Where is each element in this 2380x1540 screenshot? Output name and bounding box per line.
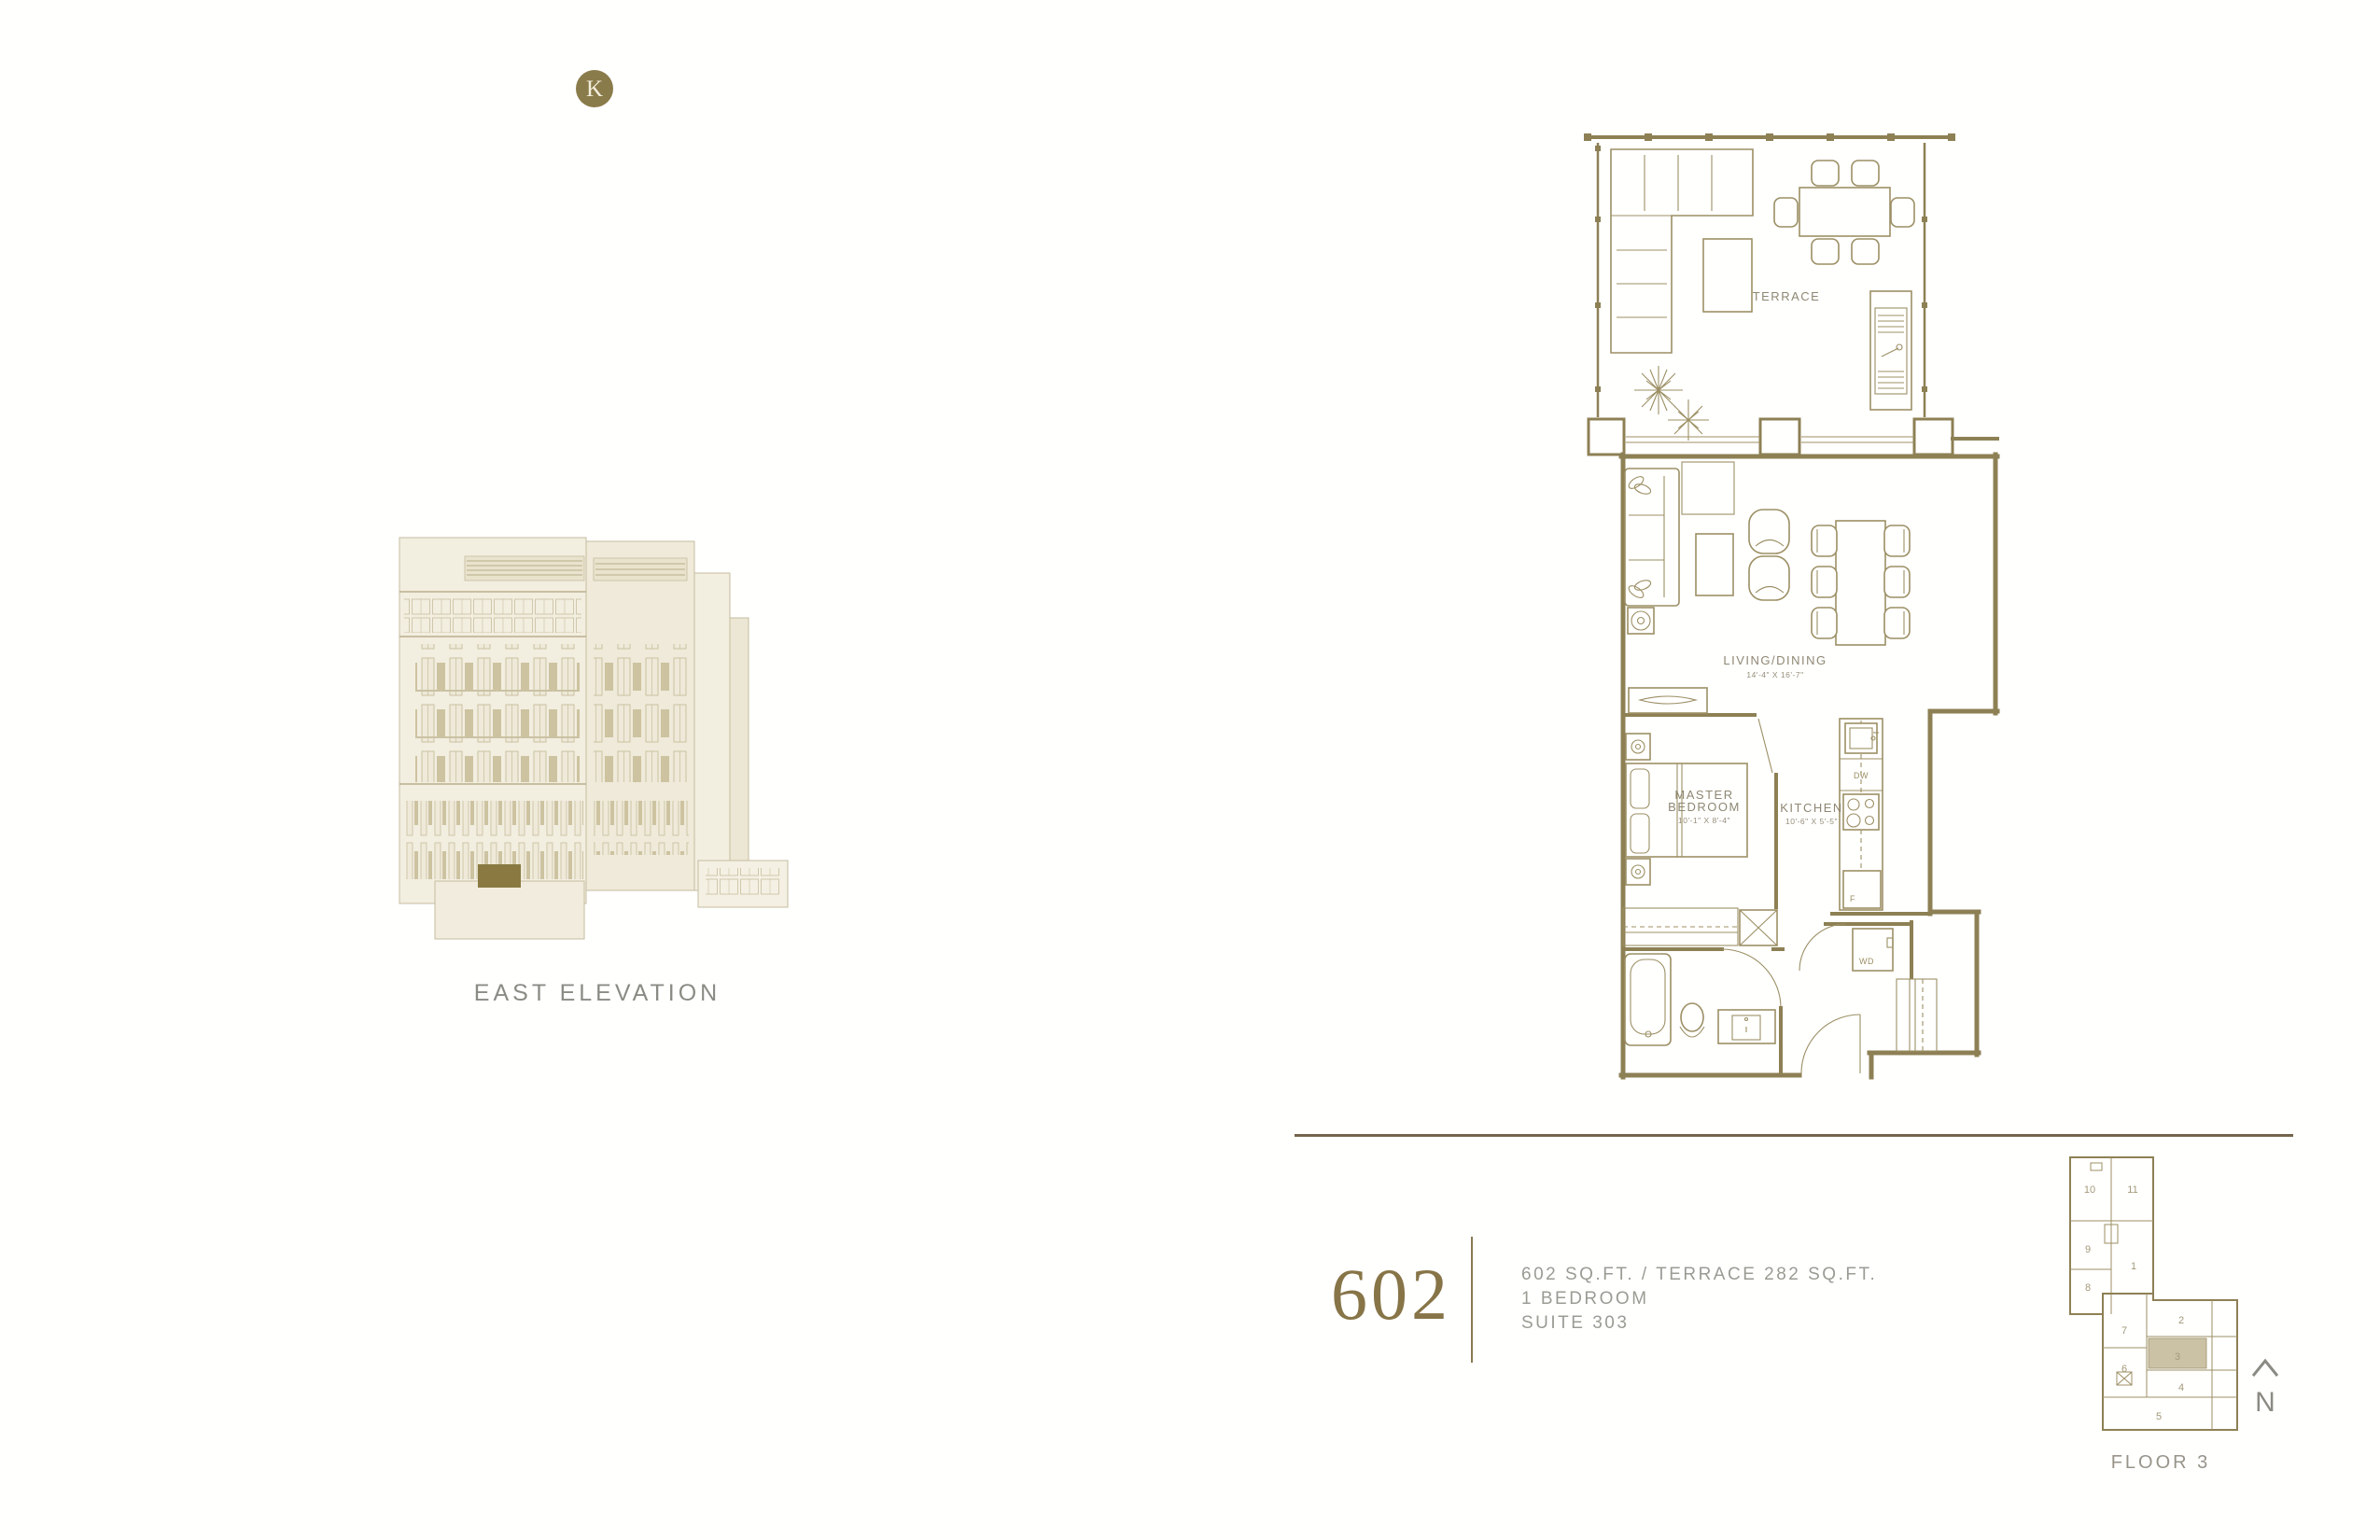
elevation-caption: EAST ELEVATION (429, 980, 765, 1007)
key-unit-1: 1 (2131, 1261, 2136, 1272)
east-elevation-drawing (392, 532, 807, 952)
kitchen: DW F KITCHEN 10'-6" X 5'-5" (1780, 719, 1883, 910)
key-unit-7: 7 (2121, 1325, 2127, 1337)
key-unit-9: 9 (2085, 1244, 2091, 1255)
key-plan-floor-label: FLOOR 3 (2086, 1452, 2235, 1474)
master-bedroom-label-2: BEDROOM (1668, 800, 1741, 814)
living-dining-label: LIVING/DINING (1723, 653, 1827, 667)
suite-suite-line: SUITE 303 (1521, 1313, 1629, 1334)
key-unit-11: 11 (2127, 1184, 2137, 1196)
north-arrow-icon: N (2242, 1355, 2289, 1421)
terrace-furniture: TERRACE (1611, 149, 1914, 441)
section-divider (1295, 1134, 2293, 1137)
key-unit-6: 6 (2121, 1364, 2127, 1375)
bbq-grill (1870, 291, 1911, 410)
washer-dryer-label: WD (1859, 957, 1874, 966)
terrace-plants (1634, 366, 1709, 441)
key-unit-2: 2 (2178, 1315, 2184, 1326)
master-bedroom-dims: 10'-1" X 8'-4" (1678, 816, 1730, 825)
suite-number: 602 (1331, 1253, 1451, 1337)
brochure-page: K (0, 0, 2380, 1540)
terrace-wall-columns (1589, 419, 1997, 455)
info-separator (1471, 1237, 1473, 1363)
brand-logo-letter: K (586, 77, 603, 101)
terrace-label: TERRACE (1753, 289, 1821, 303)
living-dining-furniture: LIVING/DINING 14'-4" X 16'-7" (1625, 462, 1910, 713)
brand-logo: K (576, 70, 613, 107)
master-bedroom-furniture: MASTER BEDROOM 10'-1" X 8'-4" (1626, 734, 1747, 885)
key-unit-8: 8 (2085, 1282, 2091, 1294)
key-unit-4: 4 (2178, 1382, 2184, 1393)
key-plan-unit-numbers: 10 11 9 1 8 7 2 6 3 4 5 (2084, 1184, 2184, 1422)
bathroom (1625, 954, 1775, 1045)
suite-bedroom-line: 1 BEDROOM (1521, 1289, 1649, 1309)
suite-area-line: 602 SQ.FT. / TERRACE 282 SQ.FT. (1521, 1265, 1877, 1285)
key-unit-5: 5 (2156, 1411, 2162, 1422)
dishwasher-label: DW (1854, 771, 1869, 780)
living-dining-dims: 14'-4" X 16'-7" (1746, 670, 1803, 679)
kitchen-dims: 10'-6" X 5'-5" (1785, 817, 1838, 826)
suite-floor-plan: TERRACE (1568, 112, 2035, 1139)
fridge-label: F (1850, 894, 1855, 903)
key-plan-lower-block (2103, 1294, 2237, 1430)
kitchen-label: KITCHEN (1780, 801, 1843, 815)
north-label: N (2255, 1387, 2275, 1418)
key-unit-3: 3 (2175, 1351, 2180, 1363)
elevation-suite-highlight (478, 864, 521, 888)
key-plan-upper-block (2070, 1157, 2153, 1314)
key-unit-10: 10 (2084, 1184, 2095, 1196)
